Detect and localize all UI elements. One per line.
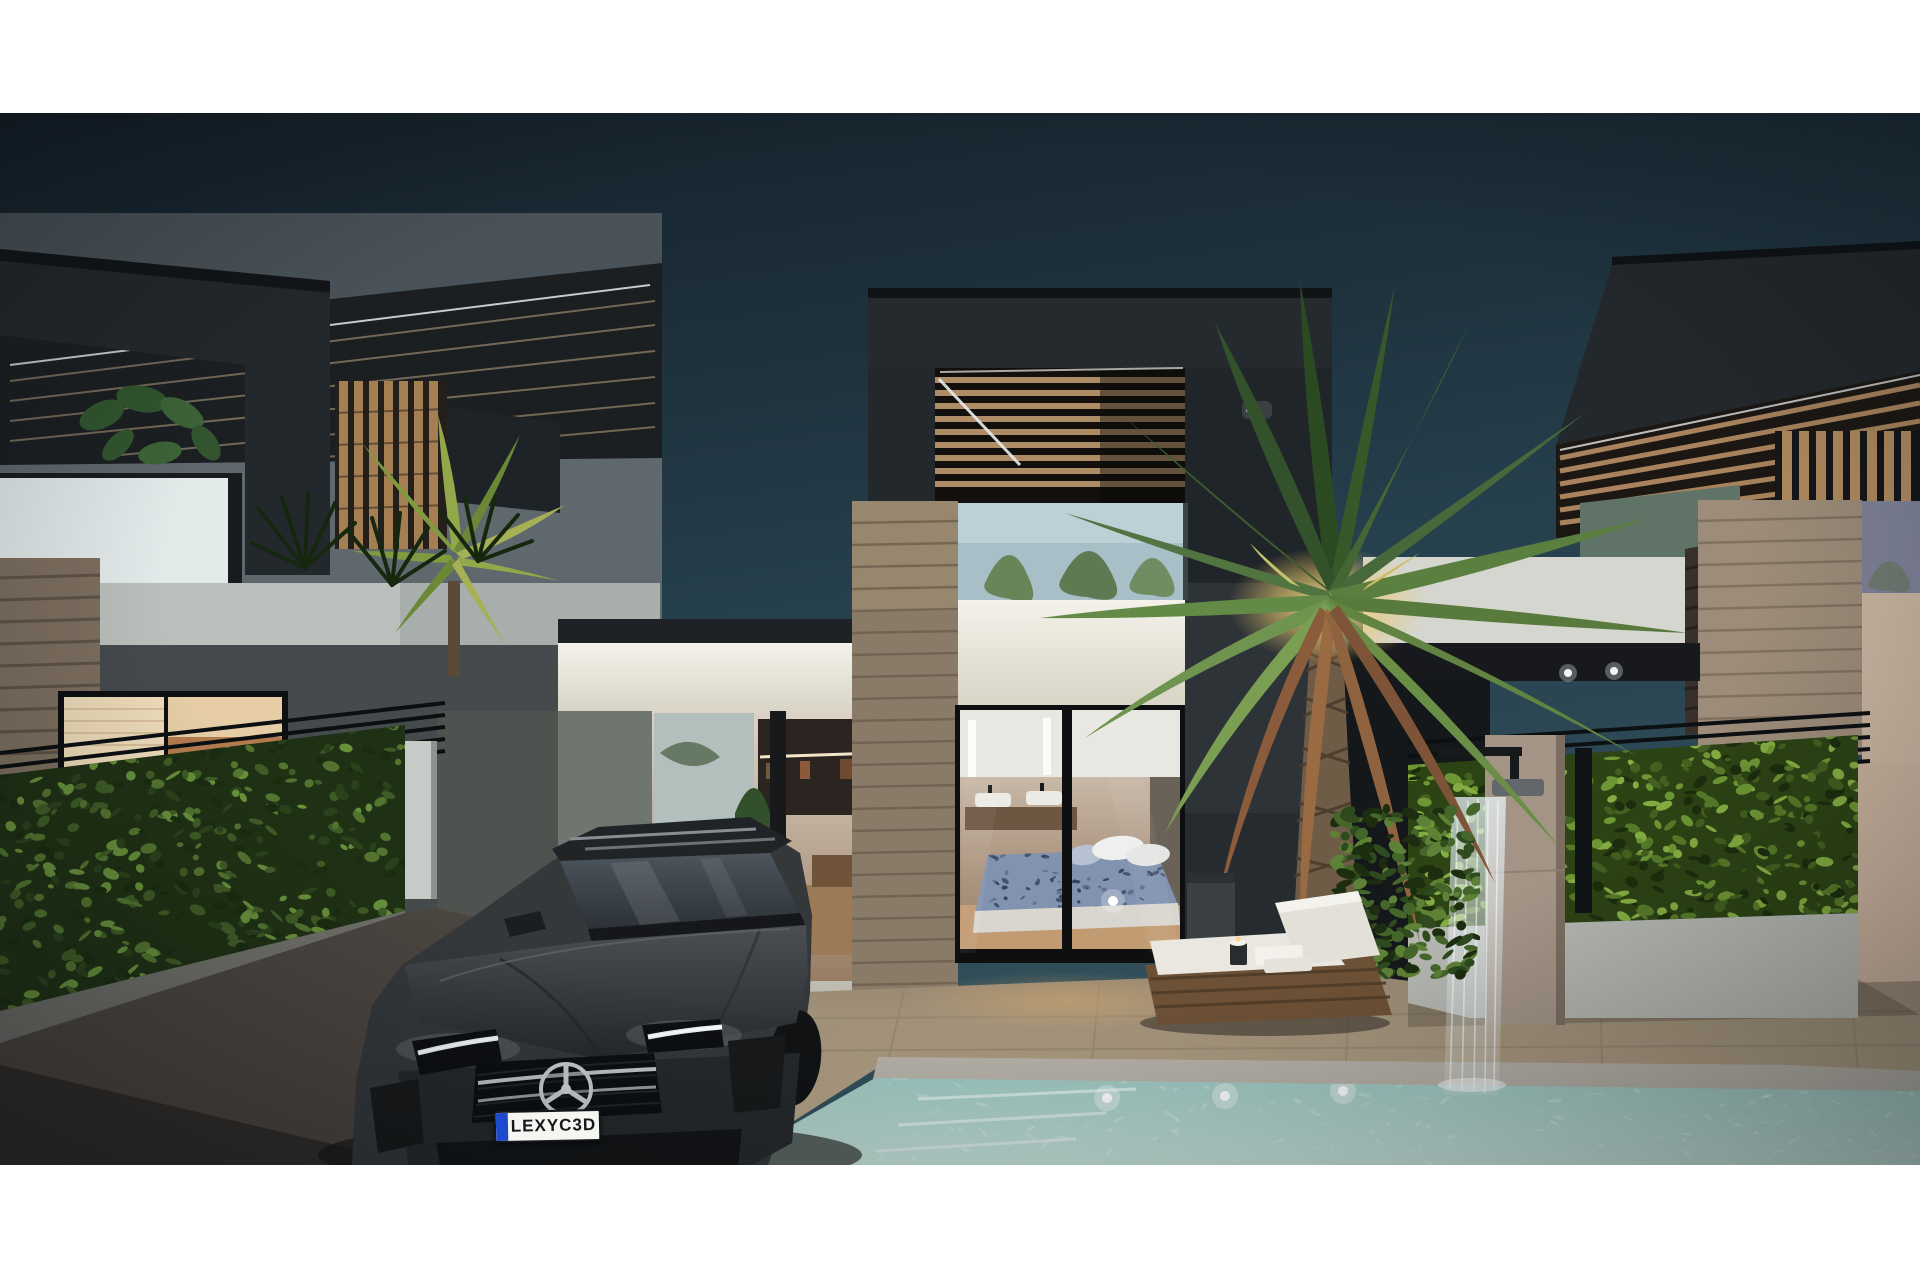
plate-number: LEXYC3D [508,1111,600,1141]
render-canvas: LEXYC3D [0,0,1920,1280]
villa-night-render: LEXYC3D [0,113,1920,1165]
license-plate: LEXYC3D [494,1109,602,1143]
vignette [0,113,1920,1165]
plate-country-band [496,1113,509,1141]
